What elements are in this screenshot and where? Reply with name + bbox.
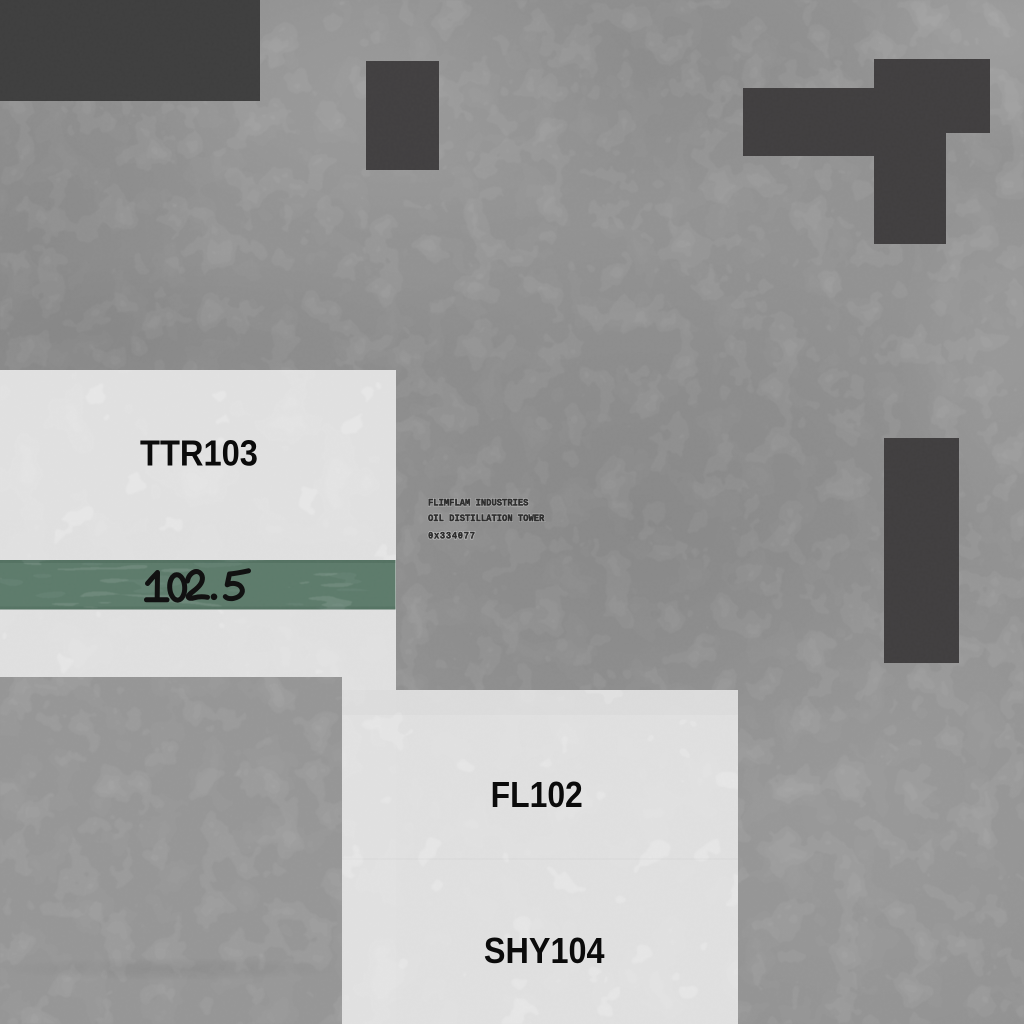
svg-text:OIL DISTILLATION TOWER: OIL DISTILLATION TOWER [428,512,545,524]
svg-text:SHY104: SHY104 [484,931,605,971]
svg-text:0x334077: 0x334077 [428,530,476,542]
svg-text:FL102: FL102 [491,775,583,815]
svg-text:FLIMFLAM INDUSTRIES: FLIMFLAM INDUSTRIES [428,497,529,509]
svg-text:TTR103: TTR103 [140,434,258,474]
